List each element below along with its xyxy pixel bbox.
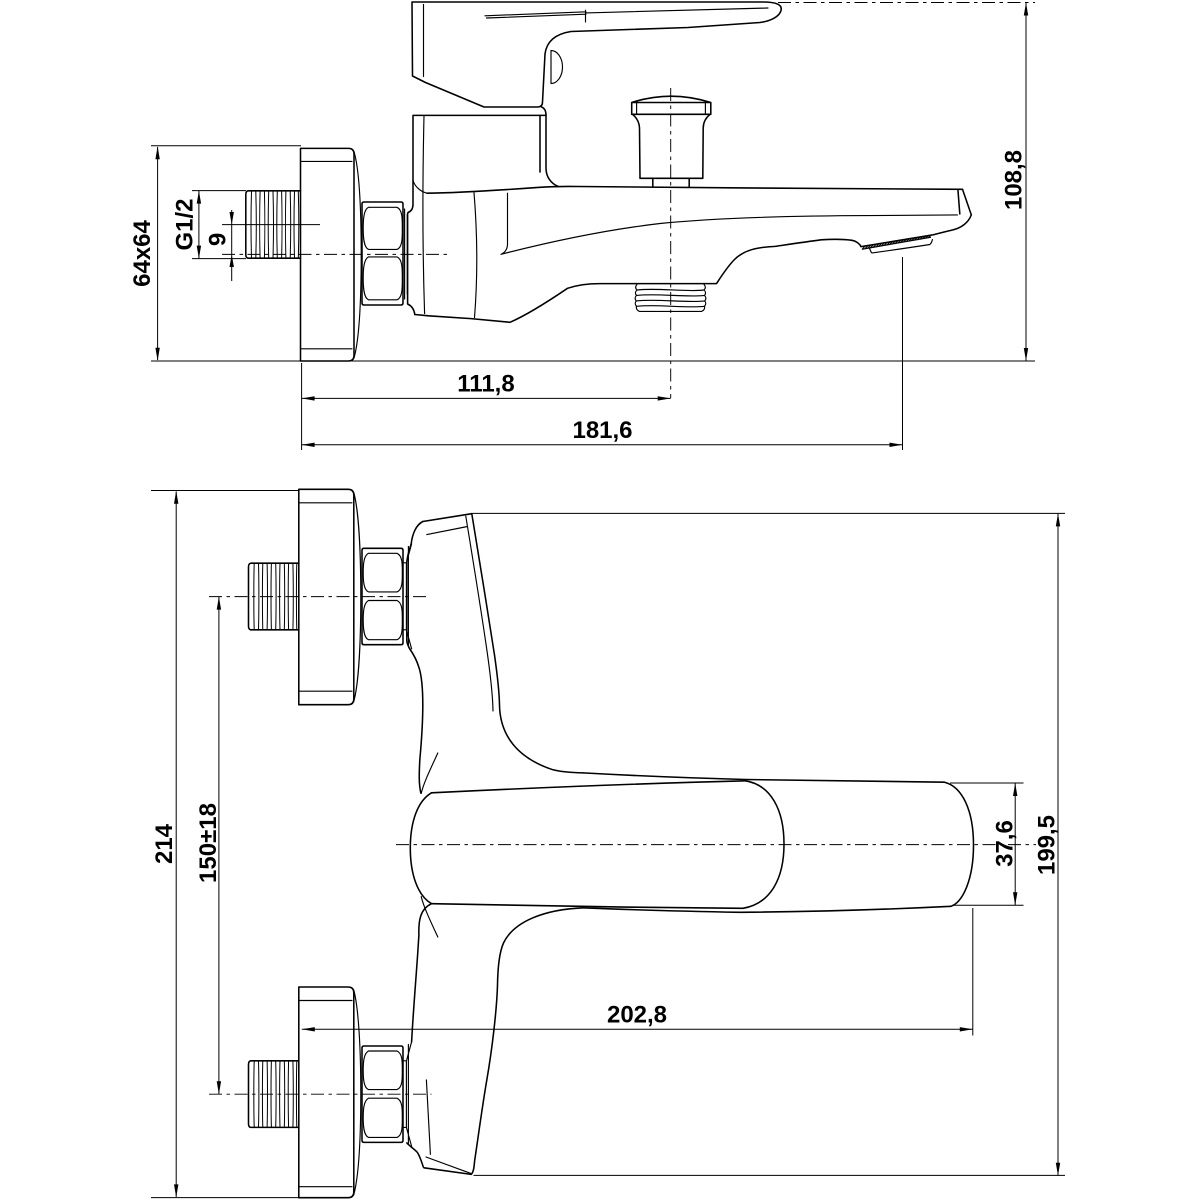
svg-text:64x64: 64x64 bbox=[129, 219, 156, 286]
svg-text:108,8: 108,8 bbox=[1001, 150, 1028, 210]
svg-text:214: 214 bbox=[151, 823, 178, 864]
svg-text:199,5: 199,5 bbox=[1034, 815, 1061, 875]
svg-text:111,8: 111,8 bbox=[457, 371, 514, 398]
svg-text:9: 9 bbox=[205, 233, 232, 246]
svg-text:150±18: 150±18 bbox=[195, 803, 222, 883]
svg-text:37,6: 37,6 bbox=[992, 820, 1019, 867]
svg-text:202,8: 202,8 bbox=[607, 1001, 667, 1028]
svg-text:181,6: 181,6 bbox=[572, 417, 632, 444]
svg-text:G1/2: G1/2 bbox=[172, 198, 199, 250]
